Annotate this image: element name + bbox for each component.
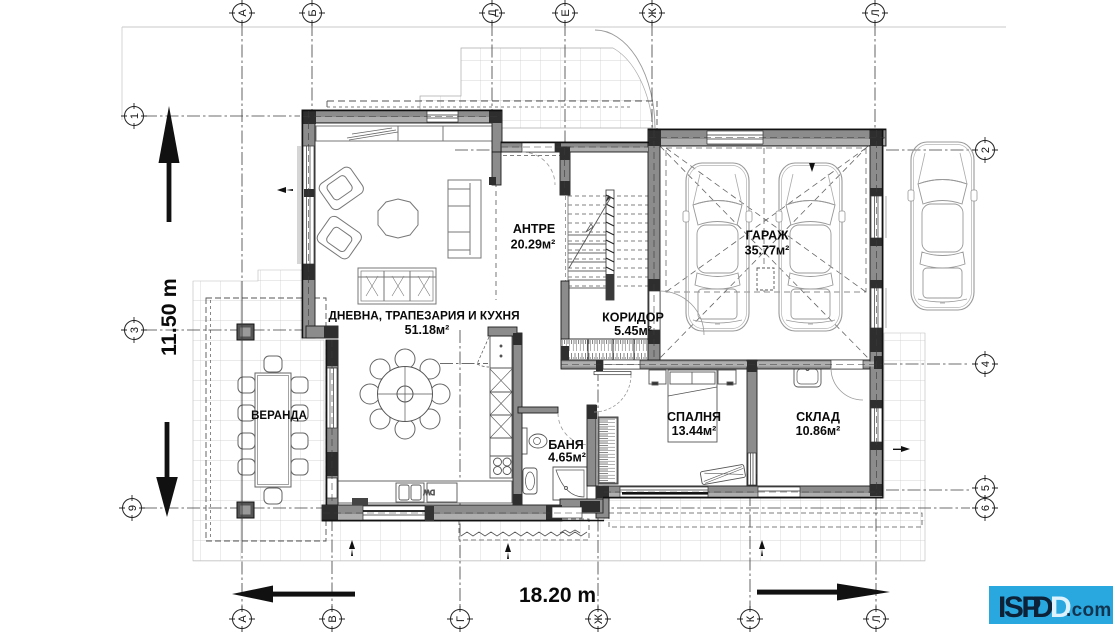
svg-text:Б: Б <box>307 9 319 16</box>
svg-text:11.50 m: 11.50 m <box>157 278 181 356</box>
svg-text:1: 1 <box>129 113 141 119</box>
svg-text:9: 9 <box>127 505 139 511</box>
svg-text:СПАЛНЯ: СПАЛНЯ <box>667 410 721 424</box>
svg-text:13.44м²: 13.44м² <box>672 424 717 438</box>
svg-text:4.65м²: 4.65м² <box>548 451 586 465</box>
svg-text:Г: Г <box>455 616 467 622</box>
svg-text:51.18м²: 51.18м² <box>405 323 450 337</box>
svg-text:Д: Д <box>487 9 499 17</box>
svg-text:В: В <box>327 615 339 622</box>
svg-text:Ж: Ж <box>647 8 659 18</box>
svg-text:5: 5 <box>980 485 992 491</box>
svg-text:АНТРЕ: АНТРЕ <box>513 222 555 236</box>
svg-text:КОРИДОР: КОРИДОР <box>602 311 664 325</box>
svg-text:.com: .com <box>1066 600 1112 621</box>
svg-text:Ж: Ж <box>593 614 605 624</box>
svg-text:3: 3 <box>129 327 141 333</box>
svg-text:20.29м²: 20.29м² <box>511 238 556 252</box>
svg-text:10.86м²: 10.86м² <box>796 424 841 438</box>
svg-text:Л: Л <box>871 615 883 622</box>
svg-text:А: А <box>237 9 249 17</box>
svg-text:5.45м²: 5.45м² <box>614 324 652 338</box>
svg-text:2: 2 <box>980 147 992 153</box>
svg-text:4: 4 <box>980 361 992 367</box>
svg-text:ДНЕВНА, ТРАПЕЗАРИЯ И КУХНЯ: ДНЕВНА, ТРАПЕЗАРИЯ И КУХНЯ <box>328 309 519 323</box>
svg-text:СКЛАД: СКЛАД <box>796 410 840 424</box>
svg-text:ВЕРАНДА: ВЕРАНДА <box>251 410 307 422</box>
svg-text:Е: Е <box>560 9 572 16</box>
svg-text:DW: DW <box>423 488 435 495</box>
svg-text:А: А <box>237 615 249 623</box>
svg-text:18.20 m: 18.20 m <box>519 584 596 607</box>
svg-text:К: К <box>745 615 757 622</box>
svg-text:ГАРАЖ: ГАРАЖ <box>746 229 790 243</box>
svg-text:Л: Л <box>870 9 882 16</box>
svg-text:6: 6 <box>980 505 992 511</box>
svg-text:35.77м²: 35.77м² <box>745 244 790 258</box>
